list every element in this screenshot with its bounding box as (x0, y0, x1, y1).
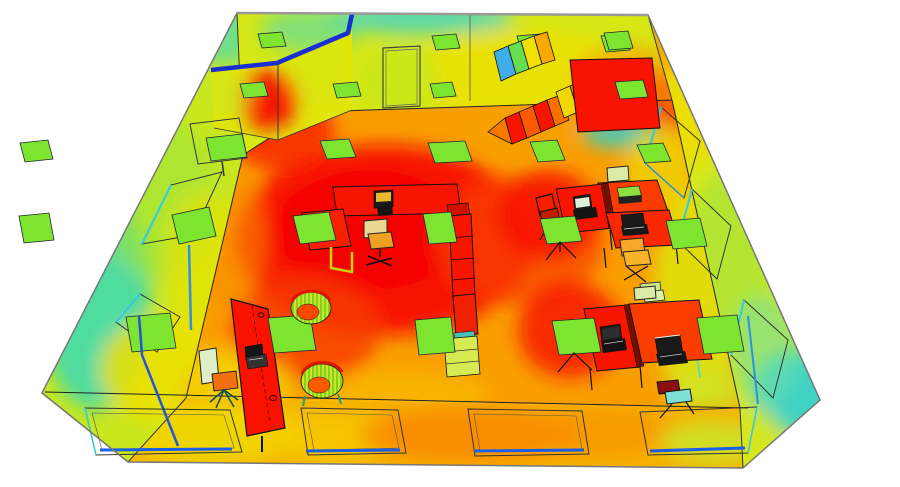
chair-seat-cyan (665, 389, 692, 404)
wall-panel (240, 82, 268, 98)
tub-chair-seat (297, 304, 319, 320)
side-table-green (666, 218, 707, 249)
side-table-green (415, 317, 455, 355)
window-sill-blue (100, 449, 232, 450)
side-table-green (697, 315, 744, 354)
wall-panel (604, 31, 633, 50)
wall-panel (19, 213, 54, 243)
monitor-display (376, 192, 391, 202)
monitor-base (377, 205, 393, 216)
wall-panel (432, 34, 460, 50)
wall-panel (333, 82, 361, 98)
window-sill-blue (306, 450, 400, 451)
side-table-green (552, 318, 601, 355)
standing-panel (126, 313, 176, 352)
side-table-green (540, 216, 582, 244)
chair-seat (368, 232, 394, 249)
wall-panel (258, 32, 286, 48)
chair-back (607, 166, 629, 182)
floor-mat (428, 141, 472, 163)
wall-panel (430, 82, 456, 98)
side-table-green (293, 212, 336, 244)
desk-top (333, 184, 461, 216)
wall-panel (20, 140, 53, 162)
front-wall (115, 398, 770, 468)
landing-panel (615, 80, 648, 99)
window-sill-blue (474, 450, 584, 451)
laptop-base (621, 224, 649, 236)
chair-seat (623, 250, 651, 266)
chair-seat (212, 371, 238, 391)
scene-svg (0, 0, 900, 487)
tub-chair-seat (308, 377, 330, 393)
shelf-body-lower (453, 294, 478, 336)
standing-panel (206, 134, 247, 161)
side-table-green (423, 212, 457, 244)
chair-back (634, 286, 656, 300)
simulation-view (0, 0, 900, 487)
